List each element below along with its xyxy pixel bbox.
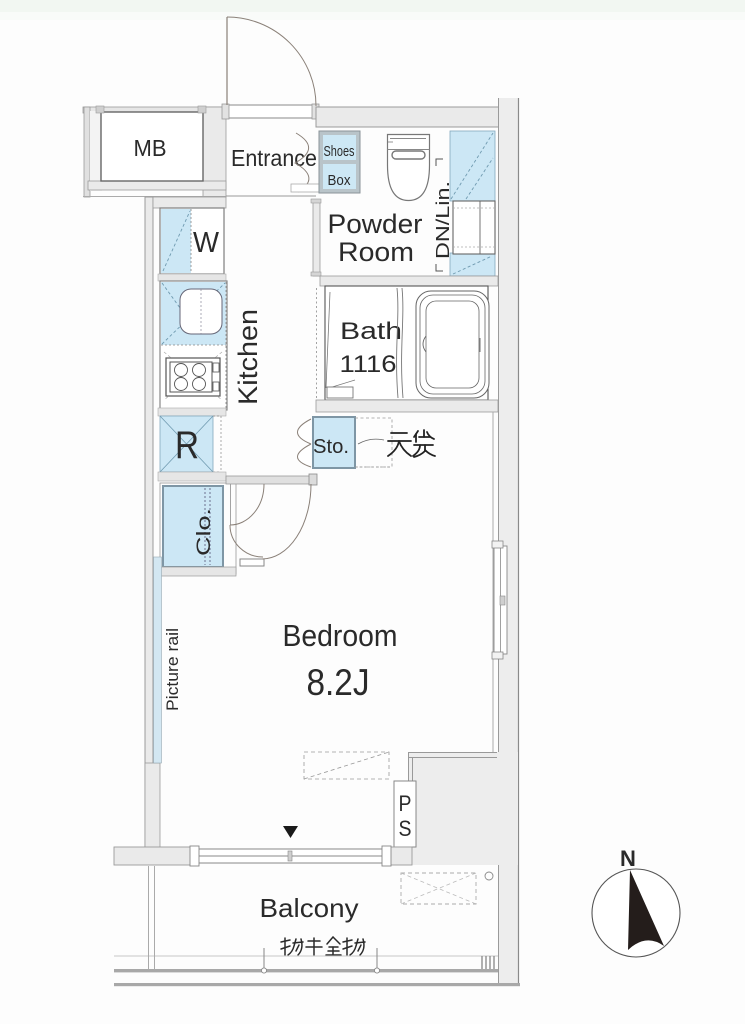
- svg-text:Balcony: Balcony: [260, 893, 359, 923]
- svg-text:Powder: Powder: [328, 209, 423, 239]
- svg-text:8.2J: 8.2J: [307, 662, 370, 703]
- svg-text:P: P: [399, 791, 412, 816]
- svg-text:Sto.: Sto.: [313, 436, 349, 458]
- svg-text:1116: 1116: [340, 351, 397, 378]
- svg-text:Picture rail: Picture rail: [163, 628, 182, 711]
- svg-text:R: R: [175, 424, 199, 467]
- svg-text:Kitchen: Kitchen: [233, 309, 263, 405]
- svg-text:Clo.: Clo.: [194, 508, 215, 556]
- svg-text:Bedroom: Bedroom: [283, 618, 398, 653]
- svg-text:N: N: [620, 846, 636, 871]
- svg-text:Bath: Bath: [340, 318, 402, 345]
- svg-text:Room: Room: [338, 237, 414, 267]
- svg-text:W: W: [193, 227, 220, 259]
- svg-text:S: S: [399, 816, 412, 841]
- svg-text:Entrance: Entrance: [231, 145, 317, 171]
- svg-text:Shoes: Shoes: [324, 143, 355, 160]
- svg-text:Box: Box: [328, 172, 351, 189]
- svg-text:MB: MB: [134, 135, 167, 161]
